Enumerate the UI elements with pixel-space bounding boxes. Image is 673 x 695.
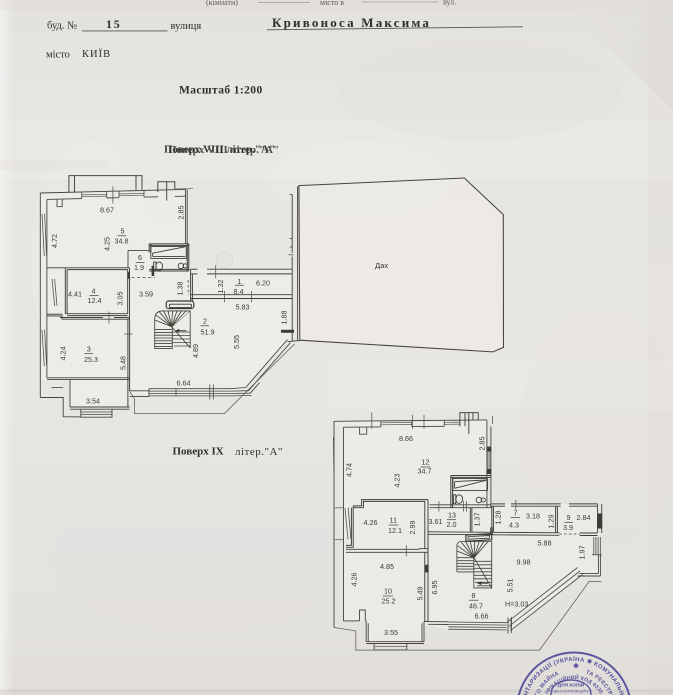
svg-text:2.99: 2.99 <box>408 521 417 535</box>
svg-text:4.41: 4.41 <box>68 290 82 299</box>
svg-text:3.61: 3.61 <box>429 517 443 526</box>
svg-text:4.3: 4.3 <box>509 521 519 530</box>
svg-text:25.3: 25.3 <box>84 355 98 364</box>
svg-text:літер."А": літер."А" <box>235 446 283 458</box>
svg-text:5.48: 5.48 <box>118 356 127 370</box>
svg-text:3.59: 3.59 <box>139 290 153 299</box>
svg-text:10: 10 <box>384 587 392 596</box>
svg-text:1.88: 1.88 <box>280 311 289 325</box>
svg-text:25.2: 25.2 <box>382 597 396 606</box>
svg-text:51.9: 51.9 <box>201 328 215 337</box>
svg-text:6.64: 6.64 <box>177 379 191 388</box>
svg-text:4.85: 4.85 <box>380 562 394 571</box>
svg-text:1.97: 1.97 <box>577 546 586 560</box>
svg-text:ІНВЕНТАРИЗАЦІЙНО: ІНВЕНТАРИЗАЦІЙНО <box>551 689 592 694</box>
svg-text:1.32: 1.32 <box>216 280 225 294</box>
svg-text:4.89: 4.89 <box>191 344 200 358</box>
svg-text:3.55: 3.55 <box>384 628 398 637</box>
svg-text:8.67: 8.67 <box>100 206 114 215</box>
svg-text:1: 1 <box>238 277 242 286</box>
svg-text:11: 11 <box>390 516 397 525</box>
svg-text:4.23: 4.23 <box>393 474 402 488</box>
svg-text:12.4: 12.4 <box>88 296 102 305</box>
svg-text:3.9: 3.9 <box>563 523 573 532</box>
svg-text:2: 2 <box>203 317 207 326</box>
svg-text:2.85: 2.85 <box>477 437 486 451</box>
svg-text:4: 4 <box>92 287 96 296</box>
svg-text:8: 8 <box>472 591 476 600</box>
svg-text:34.7: 34.7 <box>418 467 432 476</box>
svg-text:5.49: 5.49 <box>415 587 424 601</box>
svg-text:Поверх IX: Поверх IX <box>173 446 224 458</box>
svg-text:Н=3.03: Н=3.03 <box>505 600 528 609</box>
svg-text:6.66: 6.66 <box>475 612 489 621</box>
svg-text:5.55: 5.55 <box>232 335 241 349</box>
svg-text:1.38: 1.38 <box>176 282 185 296</box>
svg-text:5.88: 5.88 <box>538 539 552 548</box>
svg-text:(кімнати): (кімнати) <box>206 0 238 7</box>
svg-text:4.24: 4.24 <box>58 347 67 361</box>
svg-text:4.25: 4.25 <box>103 237 112 251</box>
svg-text:місто: місто <box>46 50 70 61</box>
svg-text:5: 5 <box>121 227 125 236</box>
svg-text:буд. №: буд. № <box>47 20 77 31</box>
svg-text:7: 7 <box>514 509 518 518</box>
svg-text:5.83: 5.83 <box>236 303 250 312</box>
svg-text:8.66: 8.66 <box>399 434 413 443</box>
svg-text:2.85: 2.85 <box>177 206 186 220</box>
svg-text:Поверх VIII літер."А": Поверх VIII літер."А" <box>168 144 279 156</box>
svg-text:1.37: 1.37 <box>473 513 482 527</box>
svg-text:3.54: 3.54 <box>86 397 100 406</box>
svg-text:9.98: 9.98 <box>517 558 531 567</box>
svg-text:1.29: 1.29 <box>547 515 556 529</box>
svg-text:3.05: 3.05 <box>116 292 125 306</box>
svg-text:6.20: 6.20 <box>256 279 270 288</box>
svg-text:✱: ✱ <box>573 662 579 670</box>
svg-text:КИЇВ: КИЇВ <box>82 48 111 60</box>
svg-text:46.7: 46.7 <box>469 602 483 611</box>
svg-text:6: 6 <box>138 253 142 262</box>
svg-text:12.1: 12.1 <box>388 526 402 535</box>
svg-text:місто в: місто в <box>320 0 344 7</box>
svg-text:Дах: Дах <box>375 261 388 270</box>
svg-text:4.26: 4.26 <box>350 573 359 587</box>
svg-text:1.28: 1.28 <box>494 511 503 525</box>
svg-text:1.9: 1.9 <box>134 263 144 272</box>
svg-text:8.4: 8.4 <box>234 287 244 296</box>
svg-text:2.0: 2.0 <box>447 520 457 529</box>
svg-text:3.18: 3.18 <box>526 512 540 521</box>
svg-text:4.26: 4.26 <box>364 518 378 527</box>
svg-text:вулиця: вулиця <box>171 21 202 32</box>
svg-text:13: 13 <box>448 511 456 520</box>
svg-text:Масштаб 1:200: Масштаб 1:200 <box>179 85 263 97</box>
svg-text:6.95: 6.95 <box>430 581 439 595</box>
svg-text:4.74: 4.74 <box>345 463 354 477</box>
svg-text:34.8: 34.8 <box>115 237 129 246</box>
svg-text:вул.: вул. <box>443 0 456 7</box>
svg-text:5.51: 5.51 <box>506 579 515 593</box>
svg-text:2.84: 2.84 <box>577 513 591 522</box>
svg-text:4.72: 4.72 <box>50 234 59 248</box>
svg-text:12: 12 <box>422 458 430 467</box>
svg-text:15: 15 <box>106 17 122 31</box>
svg-text:9: 9 <box>567 513 571 522</box>
svg-text:3: 3 <box>87 345 91 354</box>
